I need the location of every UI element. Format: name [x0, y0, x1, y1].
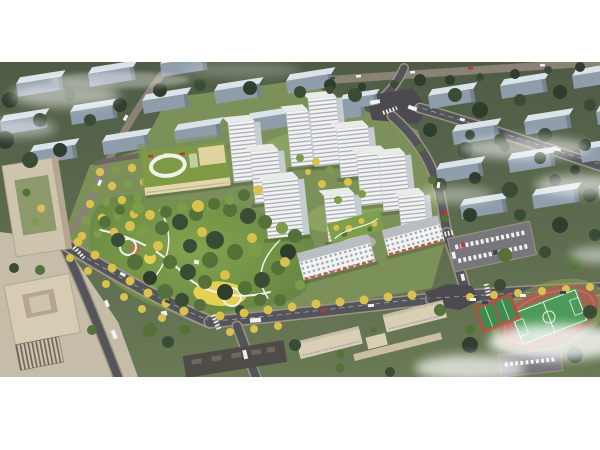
kindergarten [137, 132, 242, 207]
rendering-canvas: Aerial masterplan rendering of a residen… [0, 0, 600, 450]
park-canopy [194, 260, 200, 265]
masterplan-aerial-rendering: Aerial masterplan rendering of a residen… [0, 0, 600, 450]
bus [250, 317, 261, 322]
